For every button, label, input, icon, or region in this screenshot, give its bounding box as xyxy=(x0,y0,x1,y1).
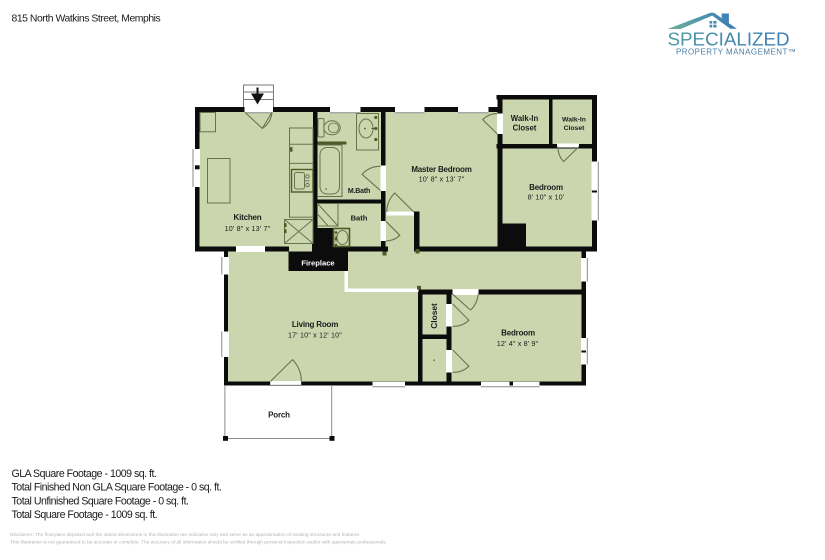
svg-text:Closet: Closet xyxy=(564,125,586,132)
svg-text:This illustration is not guara: This illustration is not guaranteed to b… xyxy=(10,540,387,546)
svg-text:Bath: Bath xyxy=(351,214,368,223)
svg-text:Disclaimer: The floorplans dep: Disclaimer: The floorplans depicted and … xyxy=(10,532,360,538)
svg-text:GLA Square Footage - 1009 sq.: GLA Square Footage - 1009 sq. ft. xyxy=(12,468,157,480)
svg-text:Master Bedroom: Master Bedroom xyxy=(411,165,471,174)
svg-text:8' 10" x 10': 8' 10" x 10' xyxy=(528,193,565,202)
svg-text:Fireplace: Fireplace xyxy=(301,258,334,267)
svg-text:Closet: Closet xyxy=(429,303,439,329)
svg-text:Total Unfinished Square Footag: Total Unfinished Square Footage - 0 sq. … xyxy=(12,495,189,507)
svg-text:Bedroom: Bedroom xyxy=(501,329,535,338)
svg-text:Walk-In: Walk-In xyxy=(562,116,586,123)
svg-text:PROPERTY MANAGEMENT™: PROPERTY MANAGEMENT™ xyxy=(676,47,796,56)
svg-text:Bedroom: Bedroom xyxy=(529,183,563,192)
svg-text:Living Room: Living Room xyxy=(292,320,338,329)
svg-text:815 North Watkins Street, Memp: 815 North Watkins Street, Memphis xyxy=(12,14,161,25)
svg-text:10' 8" x 13' 7": 10' 8" x 13' 7" xyxy=(419,175,465,184)
svg-text:12' 4" x 8' 9": 12' 4" x 8' 9" xyxy=(497,339,539,348)
svg-text:Porch: Porch xyxy=(268,411,290,420)
svg-text:M.Bath: M.Bath xyxy=(348,188,370,195)
svg-text:Walk-In: Walk-In xyxy=(511,114,539,123)
svg-text:Total Finished Non GLA Square: Total Finished Non GLA Square Footage - … xyxy=(12,482,222,494)
svg-text:Kitchen: Kitchen xyxy=(234,213,262,222)
svg-text:Total Square Footage - 1009 sq: Total Square Footage - 1009 sq. ft. xyxy=(12,509,158,521)
svg-text:10' 8" x 13' 7": 10' 8" x 13' 7" xyxy=(225,224,271,233)
svg-text:Closet: Closet xyxy=(513,123,537,132)
svg-text:17' 10" x 12' 10": 17' 10" x 12' 10" xyxy=(288,331,342,340)
